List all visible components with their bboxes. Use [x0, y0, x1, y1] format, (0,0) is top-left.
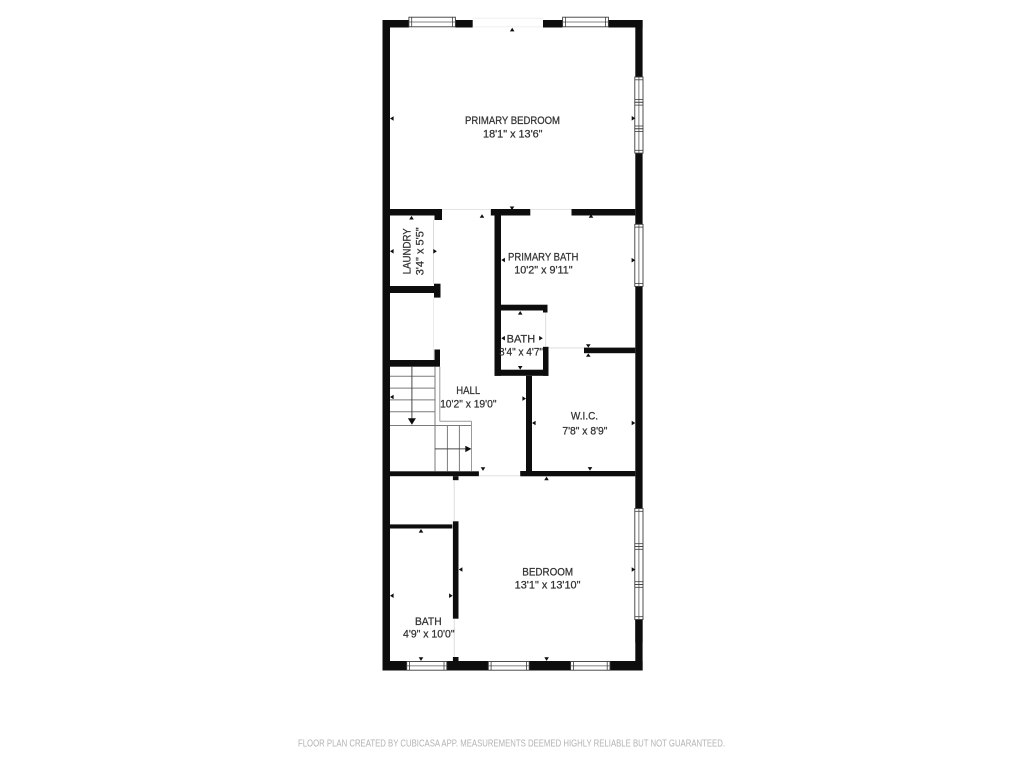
svg-text:PRIMARY BATH: PRIMARY BATH — [508, 251, 578, 263]
svg-text:BATH: BATH — [415, 616, 442, 628]
svg-text:BATH: BATH — [507, 334, 536, 346]
svg-text:PRIMARY BEDROOM: PRIMARY BEDROOM — [465, 115, 560, 127]
svg-text:10'2" x 9'11": 10'2" x 9'11" — [514, 264, 573, 276]
svg-text:13'1" x 13'10": 13'1" x 13'10" — [515, 580, 581, 592]
svg-text:18'1" x 13'6": 18'1" x 13'6" — [483, 128, 543, 140]
svg-text:FLOOR PLAN CREATED BY CUBICASA: FLOOR PLAN CREATED BY CUBICASA APP. MEAS… — [298, 739, 725, 750]
svg-text:HALL: HALL — [456, 385, 480, 397]
svg-text:BEDROOM: BEDROOM — [522, 567, 573, 579]
svg-text:4'9" x 10'0": 4'9" x 10'0" — [403, 629, 455, 641]
svg-text:W.I.C.: W.I.C. — [571, 411, 598, 423]
svg-text:LAUNDRY: LAUNDRY — [401, 228, 413, 274]
svg-text:3'4" x 5'5": 3'4" x 5'5" — [415, 227, 427, 275]
svg-text:3'4" x 4'7": 3'4" x 4'7" — [499, 347, 543, 359]
svg-text:7'8" x 8'9": 7'8" x 8'9" — [562, 426, 607, 438]
svg-text:10'2" x 19'0": 10'2" x 19'0" — [440, 399, 497, 411]
